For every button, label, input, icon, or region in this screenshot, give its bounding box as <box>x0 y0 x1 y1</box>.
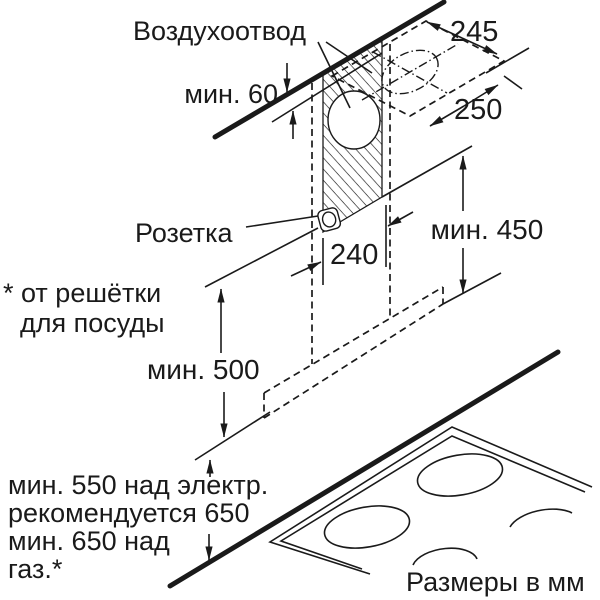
dim-250-label: 250 <box>454 94 502 126</box>
burner-right-arc <box>510 509 572 527</box>
cooktop <box>170 352 592 586</box>
min-500-label: мин. 500 <box>147 354 260 385</box>
socket-label: Розетка <box>135 218 234 248</box>
clearance-line4: газ.* <box>8 554 63 584</box>
units-label: Размеры в мм <box>406 567 585 597</box>
footnote-line1: * от решётки <box>3 278 161 308</box>
dim-240-label: 240 <box>330 239 378 271</box>
clearance-line3: мин. 650 над <box>8 526 170 556</box>
clearance-line2: рекомендуется 650 <box>8 498 249 528</box>
burner-bottom-arc <box>413 548 477 565</box>
clearance-line1: мин. 550 над электр. <box>8 470 268 500</box>
burner-top <box>414 448 506 502</box>
footnote-line2: для посуды <box>20 308 165 338</box>
air-outlet-label: Воздухоотвод <box>133 16 306 46</box>
dim-245-label: 245 <box>450 16 498 48</box>
wall-duct-hole <box>328 91 380 149</box>
installation-diagram: Воздухоотвод мин. 60 245 250 240 Розетка… <box>0 0 600 600</box>
min-60-label: мин. 60 <box>184 79 278 109</box>
diagram-canvas: Воздухоотвод мин. 60 245 250 240 Розетка… <box>0 0 600 600</box>
min-450-label: мин. 450 <box>431 214 544 245</box>
hood-body-outline <box>264 287 443 418</box>
